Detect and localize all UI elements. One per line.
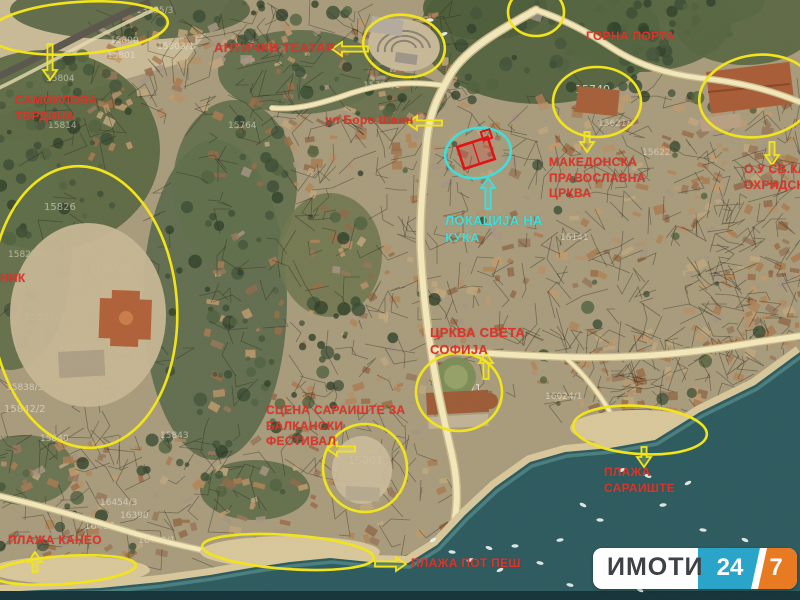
- label-line: ЦРКВА: [549, 186, 646, 202]
- samoilova-tvrdina-label: САМОИЛОВАТВРДИНА: [15, 93, 97, 124]
- label-line: НИК: [0, 271, 26, 287]
- label-line: ПЛАЖА: [604, 465, 675, 481]
- label-line: АНТИЧКИ ТЕАТАР: [214, 40, 335, 57]
- gorna-porta-label: ГОРНА ПОРТА: [586, 29, 675, 45]
- logo-7-text: 7: [759, 554, 793, 582]
- imoti-247-logo: ИМОТИ 24 7: [593, 548, 797, 589]
- logo-brand-text: ИМОТИ: [607, 553, 699, 582]
- crkva-sveta-sofija-label: ЦРКВА СВЕТАСОФИЈА: [430, 325, 525, 359]
- label-line: ул Боро Шаин: [325, 113, 413, 129]
- label-line: ТВРДИНА: [15, 109, 97, 125]
- plaza-pot-pes-label: ПЛАЖА ПОТ ПЕШ: [411, 556, 521, 572]
- real-estate-map-image: 156981574016030/11600113795/31580015803/…: [0, 0, 800, 600]
- label-line: ПЛАЖА КАНЕО: [8, 533, 102, 549]
- label-line: ФЕСТИВАЛ: [266, 434, 405, 450]
- label-line: САРАИШТЕ: [604, 481, 675, 497]
- logo-24-text: 24: [705, 554, 755, 582]
- label-line: ПЛАЖА ПОТ ПЕШ: [411, 556, 521, 572]
- label-line: ЦРКВА СВЕТА: [430, 325, 525, 342]
- plaza-kaneo-label: ПЛАЖА КАНЕО: [8, 533, 102, 549]
- label-line: ГОРНА ПОРТА: [586, 29, 675, 45]
- scena-saraiste-label: СЦЕНА САРАИШТЕ ЗАБАЛКАНСКИФЕСТИВАЛ: [266, 403, 405, 450]
- ul-boro-shain-label: ул Боро Шаин: [325, 113, 413, 129]
- label-line: САМОИЛОВА: [15, 93, 97, 109]
- map-annotations-layer: САМОИЛОВАТВРДИНААНТИЧКИ ТЕАТАРГОРНА ПОРТ…: [0, 0, 800, 600]
- label-line: О.У СВ.КЛИ: [744, 162, 800, 178]
- plaosnik-label: НИК: [0, 271, 26, 287]
- label-line: МАКЕДОНСКА: [549, 155, 646, 171]
- label-line: ОХРИДСКИ: [744, 178, 800, 194]
- label-line: БАЛКАНСКИ: [266, 419, 405, 435]
- antichki-teatar-label: АНТИЧКИ ТЕАТАР: [214, 40, 335, 57]
- label-line: СЦЕНА САРАИШТЕ ЗА: [266, 403, 405, 419]
- label-line: ПРАВОСЛАВНА: [549, 171, 646, 187]
- label-line: ЛОКАЦИЈА НА: [445, 213, 543, 230]
- label-line: КУЌА: [445, 230, 543, 247]
- label-line: СОФИЈА: [430, 342, 525, 359]
- lokacija-na-kukja-label: ЛОКАЦИЈА НАКУЌА: [445, 213, 543, 247]
- ou-sv-kliment-label: О.У СВ.КЛИОХРИДСКИ: [744, 162, 800, 193]
- plaza-saraiste-label: ПЛАЖАСАРАИШТЕ: [604, 465, 675, 496]
- makedonska-crkva-label: МАКЕДОНСКАПРАВОСЛАВНАЦРКВА: [549, 155, 646, 202]
